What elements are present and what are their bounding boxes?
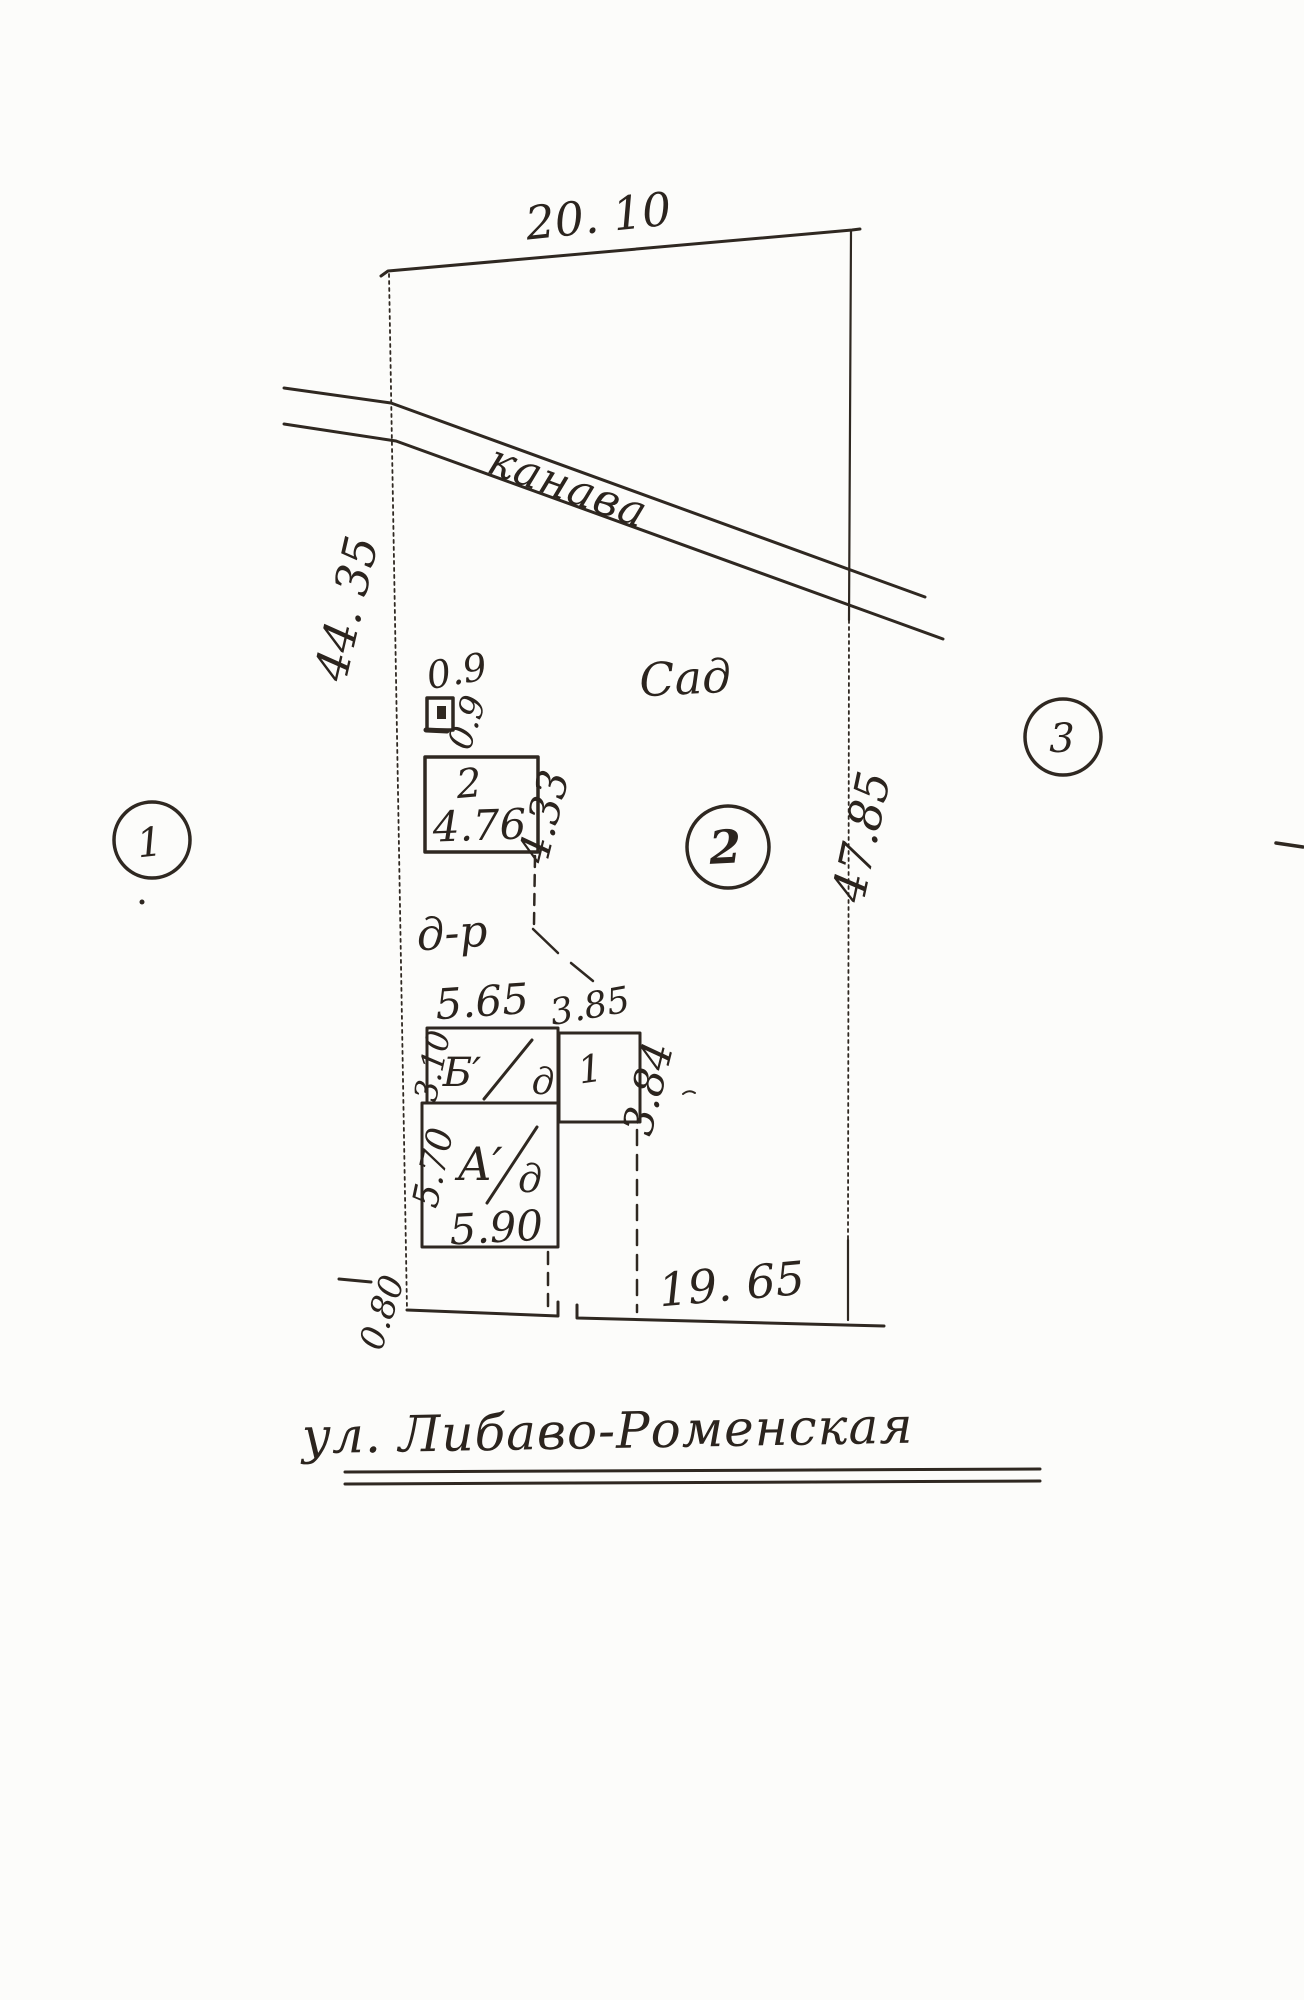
dimension-bottom-offset: 0.80 (352, 1270, 413, 1354)
annex-b-label-slash (484, 1040, 532, 1099)
dimension-right-side: 47.85 (821, 767, 901, 908)
ditch-label: канава (481, 434, 654, 539)
footpath-dashed-line-vertical (534, 856, 535, 924)
scanned-plan-page: канава 20. 10 44. 35 47.85 19. 65 0.80 С… (0, 0, 1304, 2000)
porch-depth-label: 3.84 (613, 1037, 683, 1140)
street-name-label: ул. Либаво-Роменская (300, 1397, 914, 1466)
footpath-dashed-line-diagonal (533, 929, 593, 981)
parcel-number-3: 3 (1049, 716, 1074, 762)
porch-number: 1 (575, 1046, 605, 1093)
house-a-letter: А′ (454, 1137, 503, 1191)
dimension-top-width: 20. 10 (522, 182, 674, 251)
street-lower-line (345, 1481, 1040, 1484)
parcel-number-2: 2 (707, 819, 743, 875)
scan-smudge-mark (683, 1091, 695, 1094)
well-depth-label-top: 0.9 (423, 644, 490, 698)
boundary-right-line-middle (848, 620, 849, 1240)
dimension-bottom-width: 19. 65 (656, 1251, 806, 1318)
right-edge-tick-line (1276, 843, 1303, 847)
scan-dot-mark (140, 900, 145, 905)
boundary-bottom-line-left (407, 1302, 558, 1316)
house-a-width-label: 5.90 (448, 1201, 544, 1255)
shed-depth-label: 4.33 (509, 765, 579, 869)
site-plan-drawing: канава 20. 10 44. 35 47.85 19. 65 0.80 С… (0, 0, 1304, 2000)
ditch-lower-line (284, 424, 943, 639)
house-a-depth-label: 5.70 (405, 1124, 462, 1211)
dimension-left-side: 44. 35 (303, 531, 389, 687)
parcel-number-1: 1 (135, 819, 165, 867)
street-upper-line (345, 1469, 1040, 1472)
house-a-material: д (518, 1157, 542, 1201)
well-depth-label-side: 0.9 (440, 691, 495, 755)
footpath-label: д-р (415, 906, 489, 962)
boundary-left-line (389, 274, 407, 1310)
porch-width-label: 3.85 (547, 980, 633, 1034)
bottom-left-tick-line (339, 1279, 371, 1282)
well-symbol-inner-mark (437, 706, 446, 719)
garden-label: Сад (638, 649, 732, 708)
boundary-right-line-upper (849, 231, 851, 620)
annex-b-material: д (532, 1062, 555, 1103)
annex-b-width-label: 5.65 (434, 974, 531, 1029)
